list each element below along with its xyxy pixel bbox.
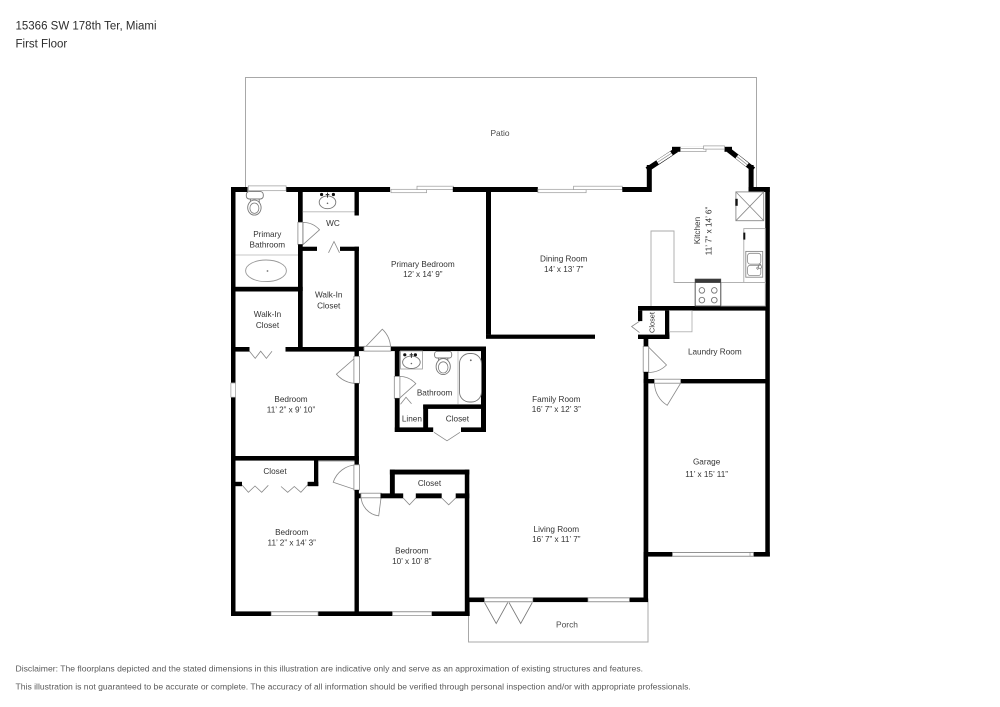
svg-text:15366 SW 178th Ter, Miami: 15366 SW 178th Ter, Miami <box>16 21 157 33</box>
svg-text:11’ 2” x 9’ 10”: 11’ 2” x 9’ 10” <box>267 406 316 415</box>
svg-text:Bedroom: Bedroom <box>274 395 307 404</box>
svg-text:Family Room: Family Room <box>532 395 580 404</box>
svg-text:Bedroom: Bedroom <box>275 528 308 537</box>
svg-text:11’ x 15’ 11”: 11’ x 15’ 11” <box>685 470 728 479</box>
svg-text:11’ 2” x 14’ 3”: 11’ 2” x 14’ 3” <box>268 539 317 548</box>
svg-text:Bathroom: Bathroom <box>417 389 453 398</box>
svg-text:10’ x 10’ 8”: 10’ x 10’ 8” <box>392 557 432 566</box>
svg-text:Bathroom: Bathroom <box>250 240 286 249</box>
svg-text:Kitchen: Kitchen <box>693 216 702 244</box>
svg-text:Living Room: Living Room <box>534 525 580 534</box>
svg-text:14’ x 13’ 7”: 14’ x 13’ 7” <box>544 265 584 274</box>
svg-text:Laundry Room: Laundry Room <box>688 347 742 356</box>
svg-text:Linen: Linen <box>402 415 422 424</box>
svg-text:16’ 7” x 11’ 7”: 16’ 7” x 11’ 7” <box>532 535 581 544</box>
svg-text:Closet: Closet <box>648 312 657 333</box>
svg-text:Porch: Porch <box>556 620 578 630</box>
svg-text:Closet: Closet <box>256 321 280 330</box>
svg-text:12’ x 14’ 9”: 12’ x 14’ 9” <box>403 270 443 279</box>
svg-text:Disclaimer: The floorplans dep: Disclaimer: The floorplans depicted and … <box>16 664 644 674</box>
svg-text:Garage: Garage <box>693 458 721 467</box>
svg-text:Dining Room: Dining Room <box>540 254 588 263</box>
svg-text:This illustration is not guara: This illustration is not guaranteed to b… <box>16 682 691 692</box>
svg-text:Closet: Closet <box>317 302 341 311</box>
svg-text:Primary Bedroom: Primary Bedroom <box>391 260 455 269</box>
svg-text:Walk-In: Walk-In <box>315 291 343 300</box>
svg-text:16’ 7” x 12’ 3”: 16’ 7” x 12’ 3” <box>532 405 581 414</box>
svg-text:Closet: Closet <box>418 479 442 488</box>
svg-text:Patio: Patio <box>490 128 509 138</box>
svg-text:11’ 7” x 14’ 6”: 11’ 7” x 14’ 6” <box>705 207 714 256</box>
svg-text:Primary: Primary <box>253 230 282 239</box>
svg-text:First Floor: First Floor <box>16 39 68 51</box>
svg-text:WC: WC <box>326 219 340 228</box>
svg-text:Closet: Closet <box>263 467 287 476</box>
svg-text:Walk-In: Walk-In <box>254 310 282 319</box>
svg-text:Closet: Closet <box>446 415 470 424</box>
svg-text:Bedroom: Bedroom <box>395 547 428 556</box>
